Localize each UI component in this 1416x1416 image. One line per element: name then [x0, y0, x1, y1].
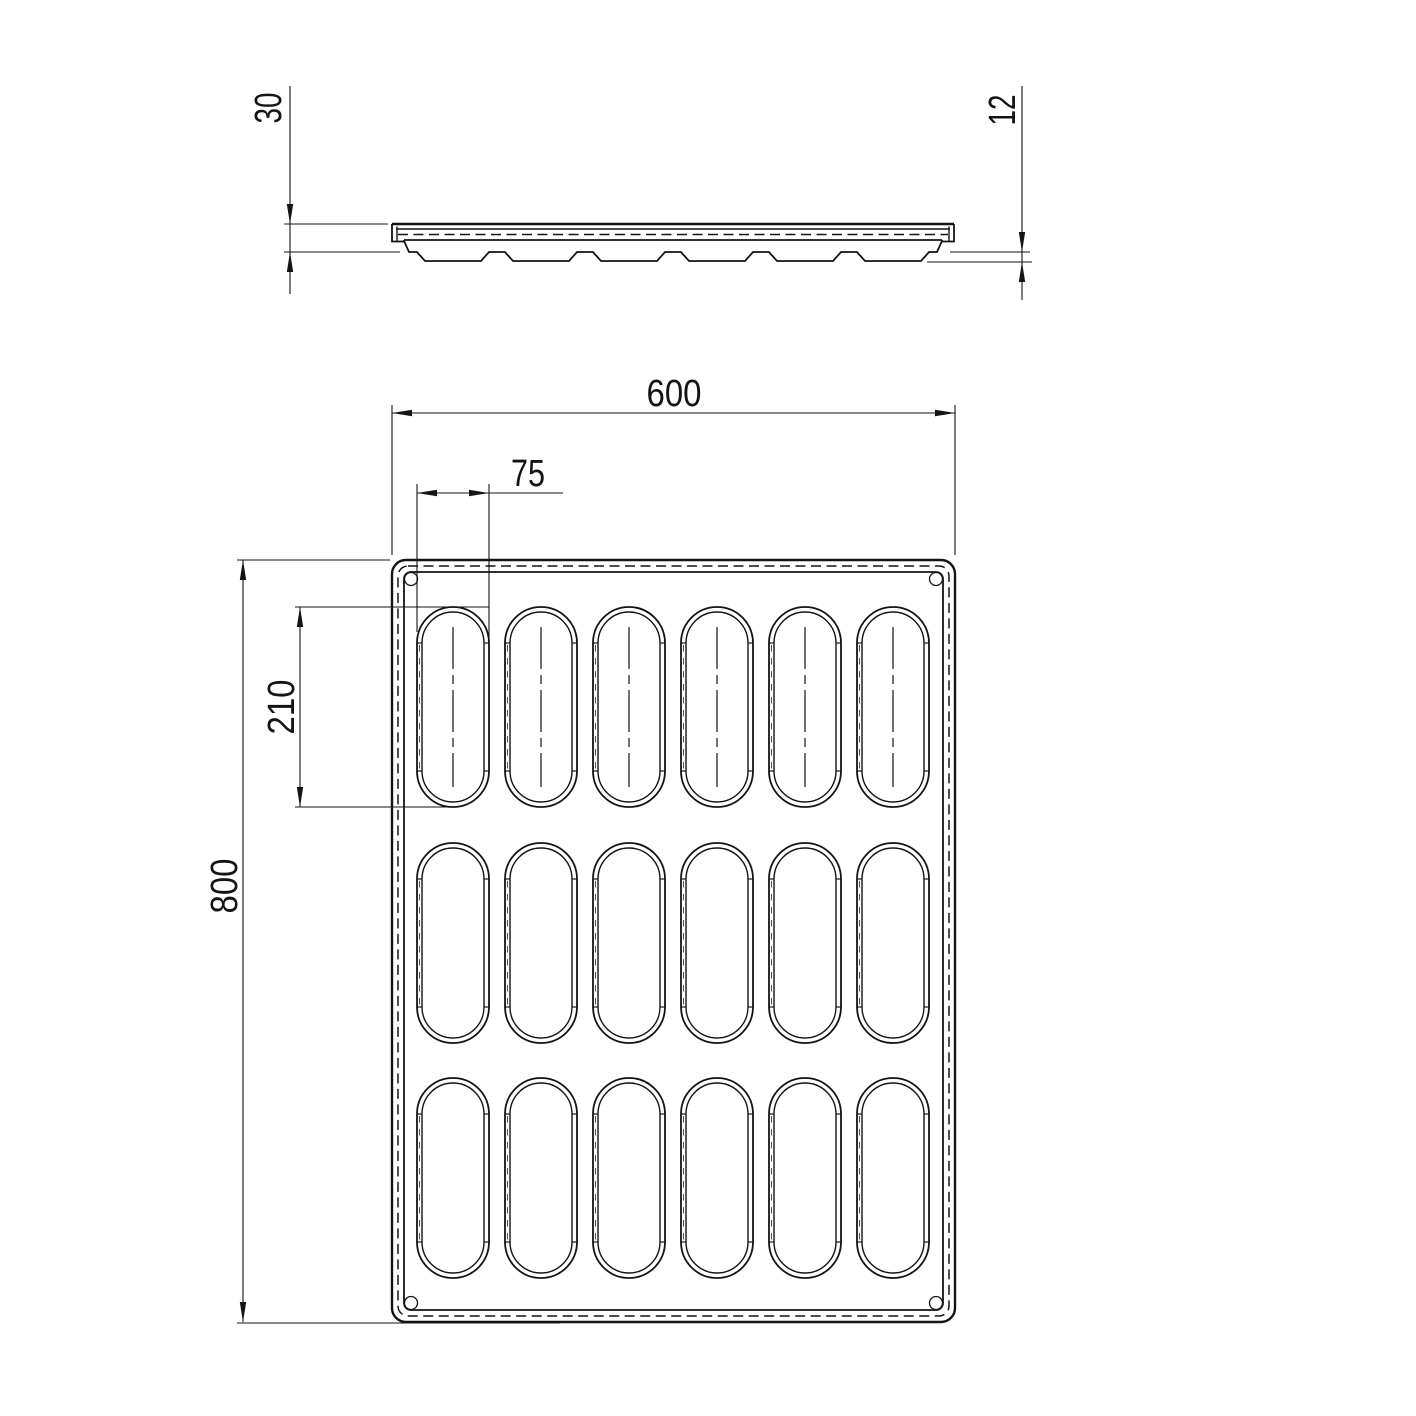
- top-view: [392, 560, 955, 1322]
- corner-detail-top-right: [930, 573, 943, 586]
- tray-height-label: 30: [248, 93, 290, 124]
- side-view: [392, 224, 954, 261]
- arrowhead: [392, 410, 412, 416]
- tray-outer-edge: [392, 560, 955, 1322]
- dimension-tray-length: 800: [204, 560, 560, 1323]
- cavity-outer-edge: [681, 1078, 753, 1278]
- cavity: [857, 607, 929, 807]
- cavity-inner-edge: [598, 1083, 660, 1273]
- side-left-cap: [392, 224, 404, 242]
- cavity-inner-edge: [510, 848, 572, 1038]
- cavity: [505, 843, 577, 1043]
- arrowhead: [1019, 232, 1025, 252]
- cavity: [681, 1078, 753, 1278]
- arrowhead: [240, 1302, 246, 1322]
- arrowhead: [417, 490, 437, 496]
- technical-drawing: 600 75 210 800: [0, 0, 1416, 1416]
- cavity-outer-edge: [593, 1078, 665, 1278]
- cavity-outer-edge: [681, 843, 753, 1043]
- dimensions: 600 75 210 800: [204, 86, 1032, 1323]
- dimension-cavity-length: 210: [261, 607, 489, 807]
- cavity: [681, 607, 753, 807]
- cavity-outer-edge: [505, 843, 577, 1043]
- tray-width-label: 600: [647, 373, 702, 415]
- cavity-inner-edge: [686, 848, 748, 1038]
- dimension-tray-width: 600: [392, 373, 955, 555]
- cavity-outer-edge: [857, 1078, 929, 1278]
- tray-rim-hidden-line: [398, 566, 949, 1316]
- cavity-inner-edge: [774, 1083, 836, 1273]
- cavity: [417, 1078, 489, 1278]
- cavity-outer-edge: [769, 843, 841, 1043]
- cavity-inner-edge: [510, 1083, 572, 1273]
- cavity-outer-edge: [857, 843, 929, 1043]
- arrowhead: [287, 252, 293, 272]
- cavity: [769, 843, 841, 1043]
- cavity: [857, 1078, 929, 1278]
- corner-detail-bottom-right: [930, 1297, 943, 1310]
- cavity: [857, 843, 929, 1043]
- dimension-tray-height: 30: [248, 86, 400, 294]
- cavity: [417, 607, 489, 807]
- cavity: [505, 1078, 577, 1278]
- arrowhead: [935, 410, 955, 416]
- arrowhead: [469, 490, 489, 496]
- arrowhead: [287, 204, 293, 224]
- cavity: [593, 1078, 665, 1278]
- cavity-inner-edge: [598, 848, 660, 1038]
- corner-detail-top-left: [405, 573, 418, 586]
- cavity: [593, 843, 665, 1043]
- drawing-sheet: 600 75 210 800: [0, 0, 1416, 1416]
- arrowhead: [297, 787, 303, 807]
- cavity-outer-edge: [593, 843, 665, 1043]
- cavity-outer-edge: [417, 1078, 489, 1278]
- cavity-outer-edge: [769, 1078, 841, 1278]
- arrowhead: [1019, 262, 1025, 282]
- dimension-cavity-bump-depth: 12: [927, 86, 1032, 300]
- cavity-inner-edge: [686, 1083, 748, 1273]
- corner-detail-bottom-left: [405, 1297, 418, 1310]
- cavity-inner-edge: [422, 1083, 484, 1273]
- cavity-inner-edge: [862, 1083, 924, 1273]
- cavity-bump-depth-label: 12: [982, 95, 1024, 126]
- cavity-outer-edge: [505, 1078, 577, 1278]
- cavity: [681, 843, 753, 1043]
- cavity-inner-edge: [422, 848, 484, 1038]
- cavity-inner-edge: [774, 848, 836, 1038]
- cavity-outer-edge: [417, 843, 489, 1043]
- arrowhead: [240, 560, 246, 580]
- arrowhead: [297, 607, 303, 627]
- cavity-length-label: 210: [261, 680, 303, 735]
- cavity: [505, 607, 577, 807]
- side-cavity-bumps: [404, 241, 942, 261]
- cavity: [769, 607, 841, 807]
- cavity: [417, 843, 489, 1043]
- cavity-width-label: 75: [511, 453, 545, 495]
- side-right-cap: [942, 224, 954, 242]
- cavity: [593, 607, 665, 807]
- cavity-grid: [417, 607, 929, 1278]
- tray-length-label: 800: [204, 859, 246, 914]
- cavity-inner-edge: [862, 848, 924, 1038]
- cavity: [769, 1078, 841, 1278]
